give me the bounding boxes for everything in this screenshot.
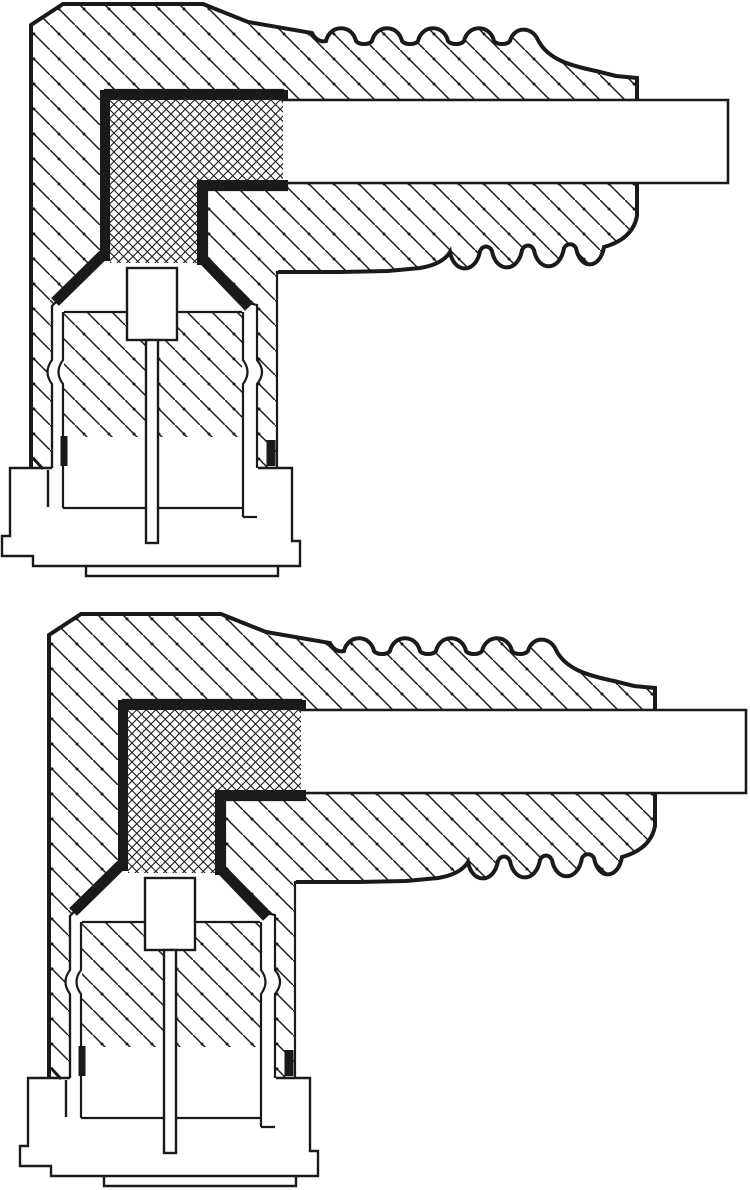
- diagram-canvas: [0, 0, 750, 1190]
- scanned-diagram-page: [0, 0, 750, 1190]
- figure-upper-connector: [2, 4, 728, 576]
- figure-lower-connector: [20, 614, 746, 1186]
